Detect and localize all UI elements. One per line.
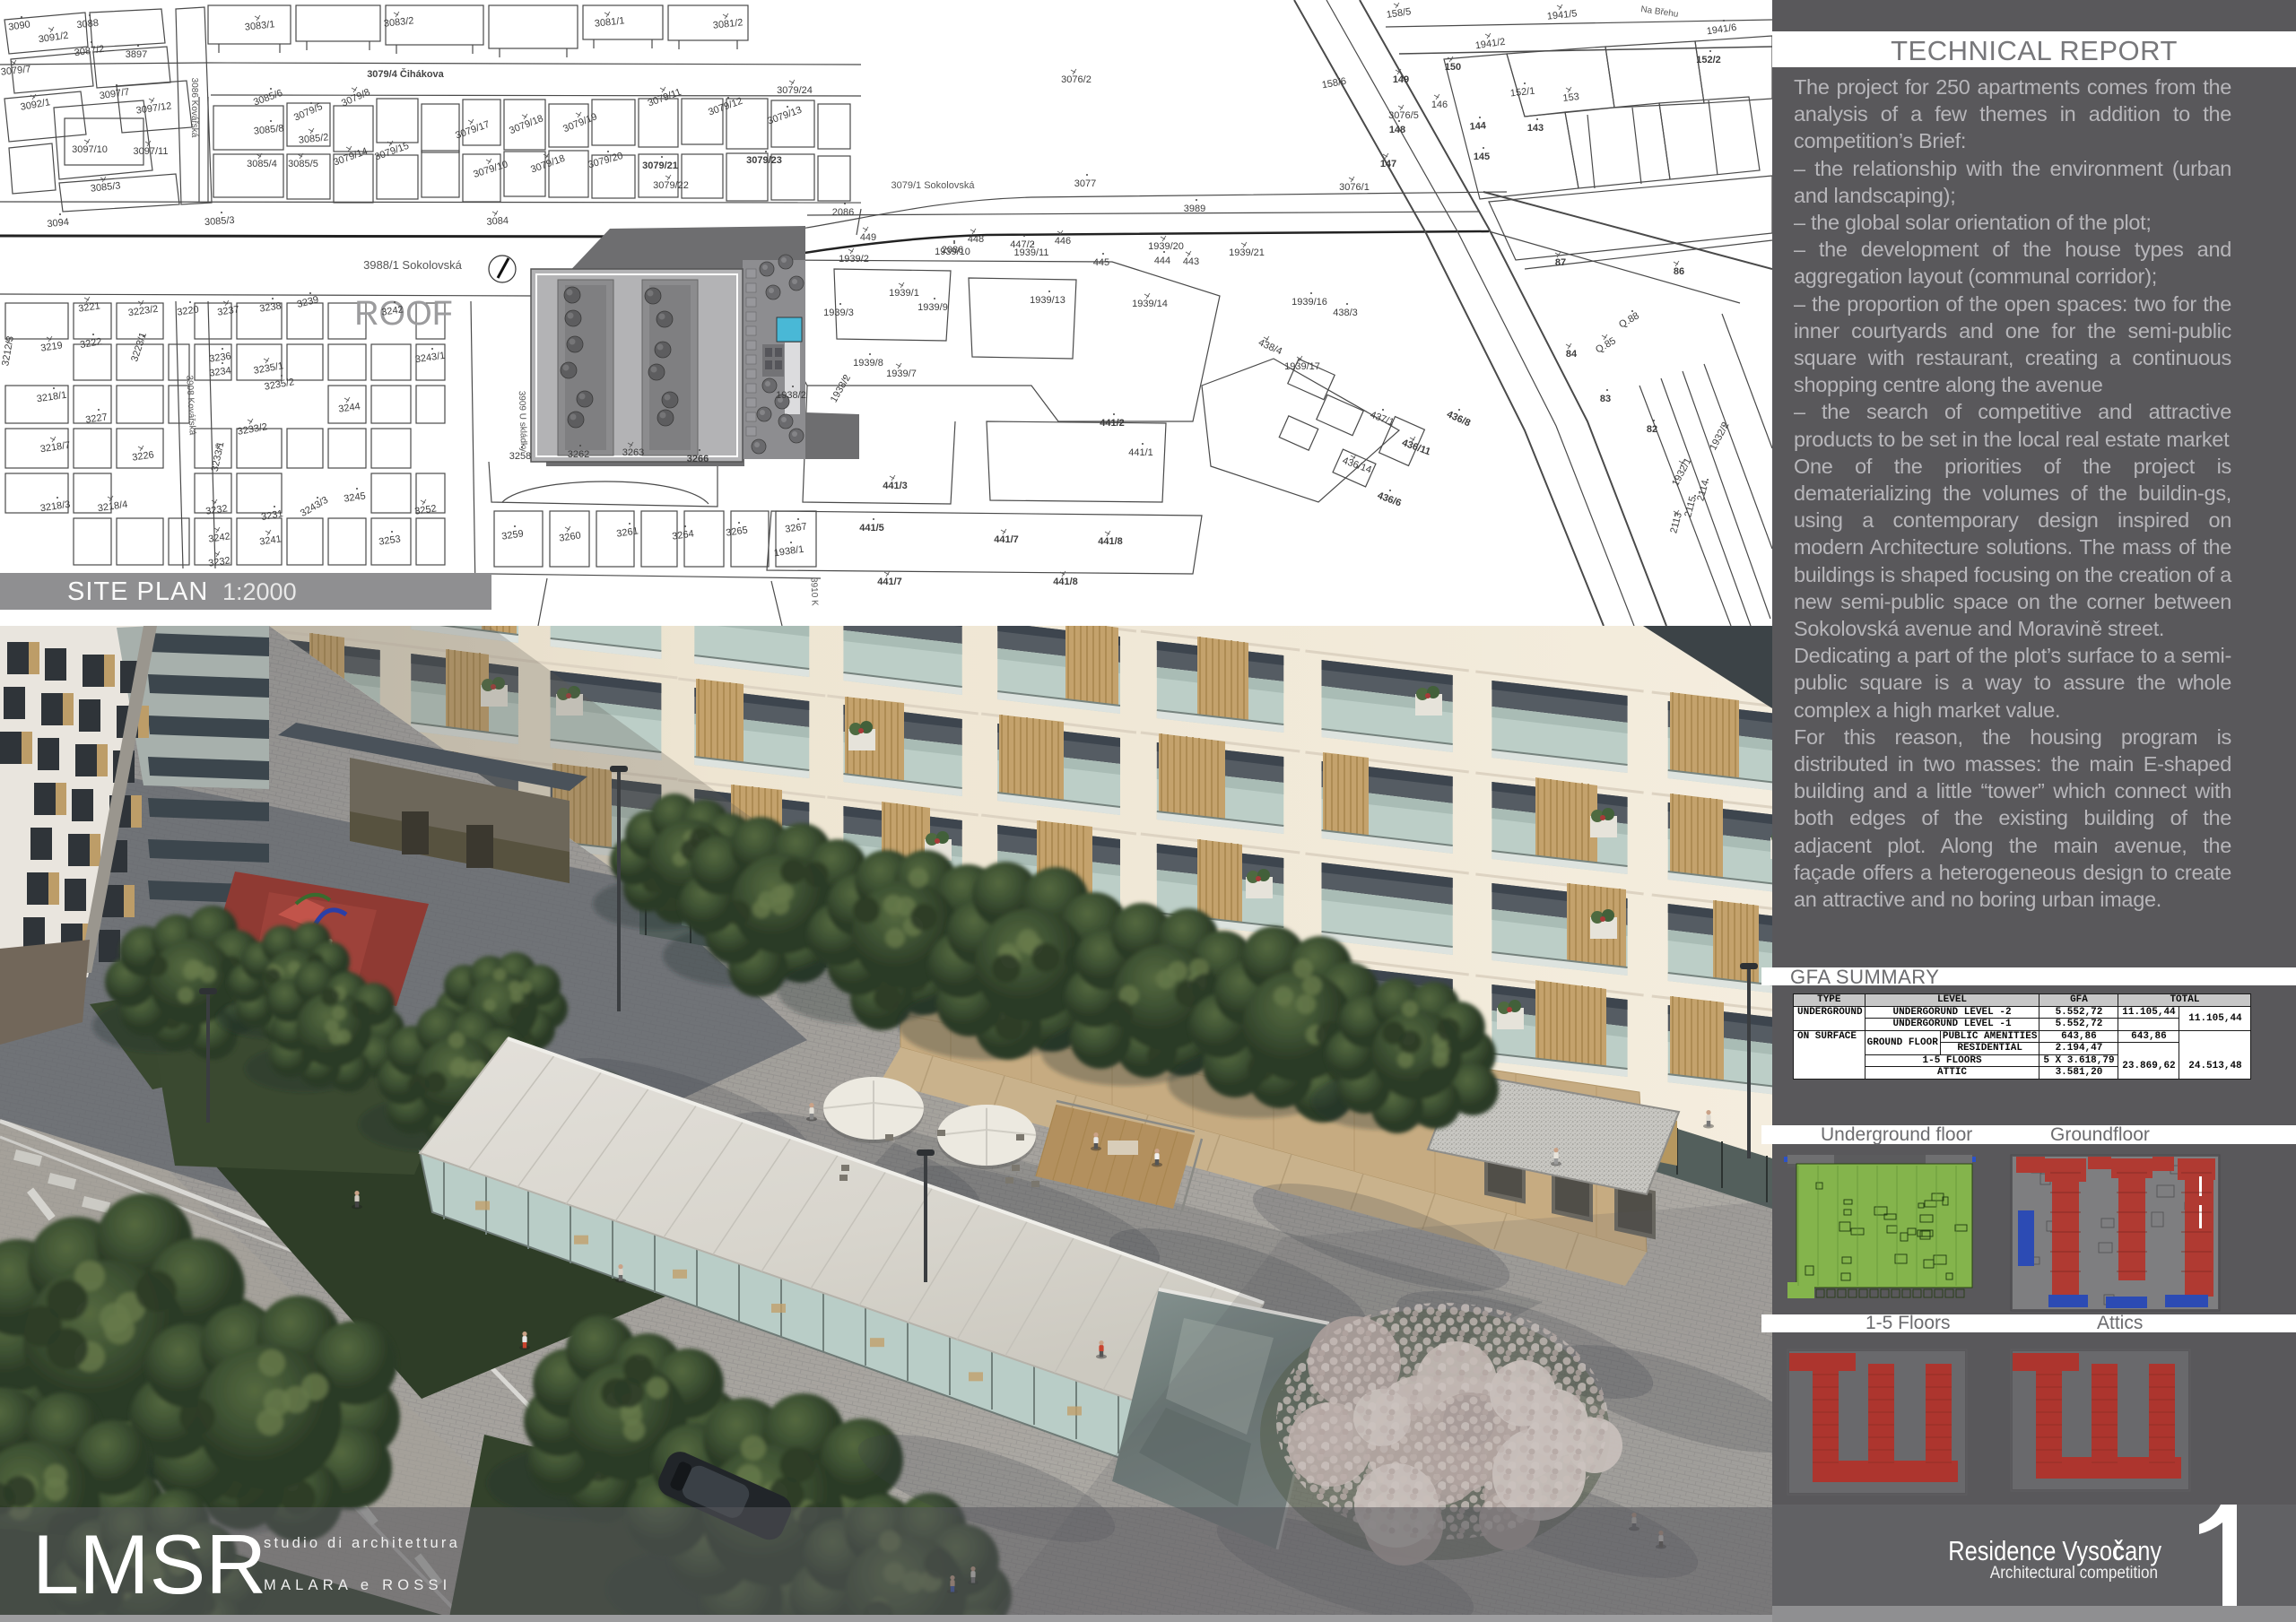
svg-text:150: 150: [1445, 62, 1461, 73]
svg-text:1939/11: 1939/11: [1014, 247, 1049, 258]
svg-text:3097/11: 3097/11: [134, 146, 169, 157]
svg-text:146: 146: [1431, 100, 1448, 110]
svg-text:1939/3: 1939/3: [823, 308, 854, 318]
svg-text:1939/14: 1939/14: [1132, 299, 1168, 309]
svg-text:441/7: 441/7: [877, 577, 902, 587]
svg-text:3263: 3263: [622, 447, 644, 458]
svg-text:3076/1: 3076/1: [1339, 182, 1370, 193]
svg-text:3910 K: 3910 K: [808, 577, 819, 606]
svg-text:3076/5: 3076/5: [1388, 110, 1419, 121]
svg-text:84: 84: [1566, 349, 1578, 360]
svg-text:3088: 3088: [76, 18, 100, 30]
svg-text:3266: 3266: [687, 454, 709, 464]
svg-text:1939/16: 1939/16: [1291, 297, 1327, 308]
svg-text:3094: 3094: [47, 217, 70, 230]
svg-text:3077: 3077: [1074, 178, 1096, 189]
svg-text:1:2000: 1:2000: [222, 578, 297, 605]
svg-text:2086: 2086: [832, 207, 854, 218]
svg-text:144: 144: [1469, 120, 1487, 132]
svg-text:3076/2: 3076/2: [1061, 74, 1091, 85]
svg-text:3258: 3258: [509, 451, 531, 462]
svg-text:3897: 3897: [126, 49, 147, 60]
svg-text:1939/10: 1939/10: [935, 247, 970, 257]
svg-text:86: 86: [1674, 266, 1684, 277]
svg-text:448: 448: [968, 234, 984, 245]
svg-text:studio di architettura: studio di architettura: [264, 1535, 460, 1551]
svg-text:1939/21: 1939/21: [1229, 247, 1265, 258]
svg-text:3079/23: 3079/23: [746, 155, 782, 166]
svg-text:1939/8: 1939/8: [853, 358, 883, 369]
svg-text:443: 443: [1183, 256, 1199, 267]
svg-text:147: 147: [1380, 159, 1396, 169]
svg-text:445: 445: [1093, 257, 1109, 268]
svg-text:438/3: 438/3: [1333, 308, 1358, 318]
svg-text:3079/24: 3079/24: [777, 85, 813, 96]
svg-text:441/8: 441/8: [1053, 577, 1078, 587]
svg-text:3079/1 Sokolovská: 3079/1 Sokolovská: [891, 180, 976, 191]
svg-text:3085/4: 3085/4: [247, 159, 277, 169]
svg-text:SITE PLAN: SITE PLAN: [67, 577, 208, 606]
svg-text:87: 87: [1555, 257, 1566, 268]
svg-text:1939/2: 1939/2: [839, 254, 869, 265]
svg-text:3079/22: 3079/22: [653, 180, 689, 191]
svg-text:3262: 3262: [568, 449, 589, 460]
svg-text:441/1: 441/1: [1128, 447, 1153, 458]
svg-text:441/3: 441/3: [883, 481, 908, 491]
svg-text:1939/1: 1939/1: [889, 288, 919, 299]
svg-text:3097/10: 3097/10: [72, 144, 108, 155]
svg-text:145: 145: [1474, 152, 1490, 162]
svg-text:1939/9: 1939/9: [918, 302, 948, 313]
svg-text:148: 148: [1389, 125, 1405, 135]
svg-text:3989: 3989: [1184, 204, 1205, 214]
svg-text:MALARA e ROSSI: MALARA e ROSSI: [264, 1577, 451, 1593]
svg-text:444: 444: [1154, 256, 1170, 266]
svg-text:83: 83: [1600, 394, 1611, 404]
svg-text:3079/4 Čihákova: 3079/4 Čihákova: [367, 68, 444, 80]
svg-text:1939/13: 1939/13: [1030, 295, 1065, 306]
svg-text:149: 149: [1393, 74, 1409, 85]
svg-text:1938/2: 1938/2: [776, 390, 806, 401]
svg-text:441/2: 441/2: [1100, 418, 1125, 429]
svg-text:3085/3: 3085/3: [204, 215, 235, 228]
svg-text:3086 Kovářská: 3086 Kovářská: [189, 78, 199, 138]
svg-text:441/8: 441/8: [1098, 536, 1123, 547]
svg-text:441/5: 441/5: [859, 523, 884, 533]
svg-text:441/7: 441/7: [994, 534, 1019, 545]
svg-text:1939/17: 1939/17: [1284, 361, 1320, 372]
svg-text:82: 82: [1647, 424, 1657, 435]
svg-text:3084: 3084: [486, 215, 509, 228]
svg-text:1939/20: 1939/20: [1148, 241, 1184, 252]
svg-text:3079/21: 3079/21: [642, 160, 678, 171]
svg-text:449: 449: [860, 232, 876, 243]
svg-text:153: 153: [1562, 91, 1580, 104]
svg-text:446: 446: [1055, 236, 1071, 247]
svg-text:LMSR: LMSR: [32, 1517, 266, 1611]
svg-text:152/2: 152/2: [1696, 55, 1721, 65]
svg-text:3988/1 Sokolovská: 3988/1 Sokolovská: [363, 258, 463, 272]
svg-text:3085/5: 3085/5: [288, 159, 318, 169]
svg-text:1939/7: 1939/7: [886, 369, 917, 379]
svg-text:143: 143: [1527, 123, 1544, 134]
